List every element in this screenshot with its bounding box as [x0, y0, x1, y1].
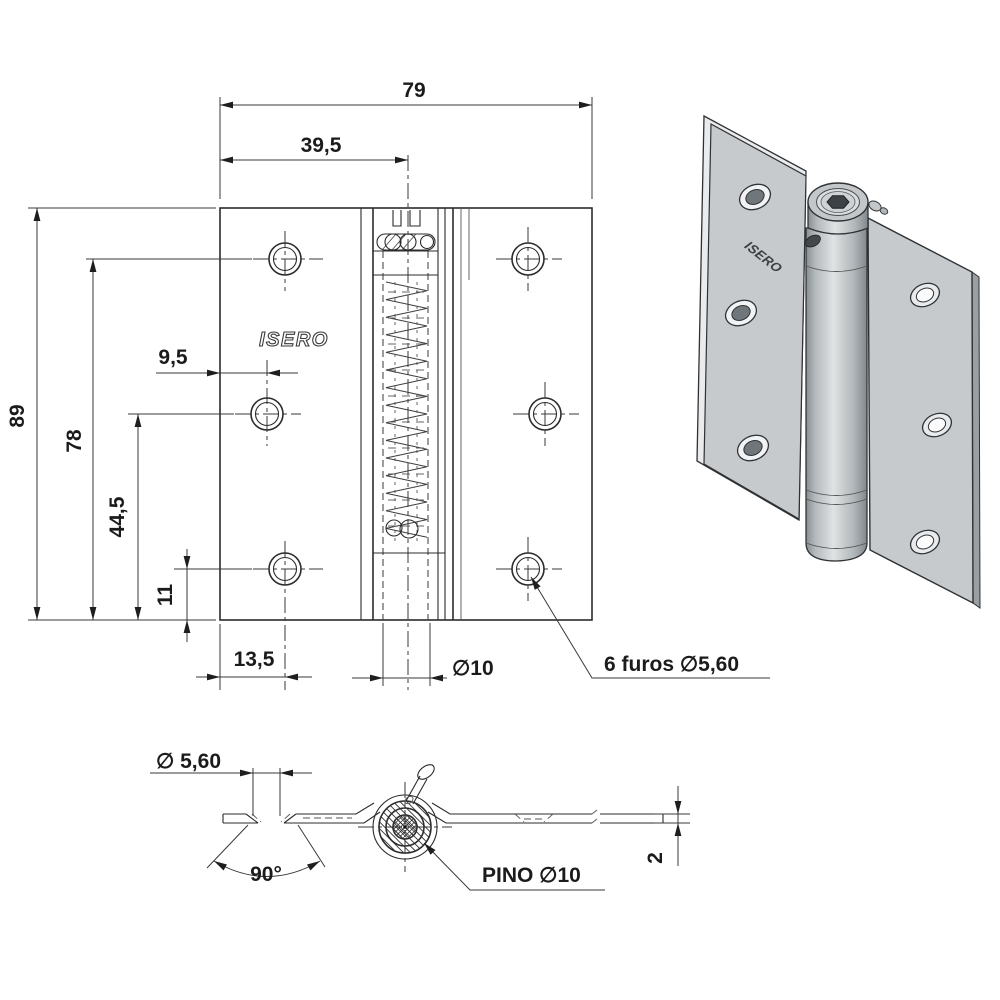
dimension-arrow	[220, 102, 233, 109]
dimension-arrow	[307, 858, 322, 870]
dimension-arrow	[285, 674, 298, 681]
dimension-arrow	[370, 675, 383, 682]
dimension-arrow	[267, 370, 280, 377]
dim-overall-height-label: 89	[6, 404, 29, 427]
dimension-arrow	[135, 414, 142, 427]
hinge-technical-drawing: ISERO 79 39,5 89 78 44,5 11 9,5 13,5	[0, 0, 1000, 1000]
hex-socket	[827, 196, 849, 209]
brand-engraving: ISERO	[259, 329, 329, 351]
dimension-arrow	[184, 556, 191, 569]
dimension-arrow	[220, 157, 233, 164]
dimension-arrow	[90, 607, 97, 620]
dimension-arrow	[528, 575, 541, 590]
dimension-arrow	[675, 823, 682, 836]
spring-end-loop	[400, 520, 418, 538]
barrel-cylinder	[806, 228, 867, 561]
iso-view: ISERO	[697, 116, 980, 608]
right-leaf-section	[428, 803, 663, 823]
hinge-technical-drawing-page: ISERO 79 39,5 89 78 44,5 11 9,5 13,5	[0, 0, 1000, 1000]
dimension-arrow	[34, 607, 41, 620]
dimension-arrow	[207, 674, 220, 681]
dimension-arrow	[135, 607, 142, 620]
knuckle-section	[358, 782, 452, 873]
dim-middle-hole-inset-label: 9,5	[158, 346, 188, 369]
dim-knuckle-diameter-label: ∅10	[452, 657, 494, 680]
dimension-arrow	[395, 157, 408, 164]
tension-screw	[377, 234, 435, 250]
dimension-arrow	[675, 801, 682, 814]
dimension-arrow	[240, 770, 253, 777]
dimension-arrow	[430, 675, 443, 682]
spring-coil	[386, 282, 427, 546]
left-leaf-section	[223, 803, 380, 823]
dim-bottom-hole-inset-label: 13,5	[234, 648, 275, 671]
section-view: ∅ 5,60 90° PINO ∅10 2	[150, 750, 690, 890]
front-dimensions: 79 39,5 89 78 44,5 11 9,5 13,5 ∅10	[6, 79, 770, 690]
hidden-countersink	[515, 814, 553, 822]
dim-bottom-hole-height-label: 11	[154, 584, 177, 607]
dimension-arrows	[34, 102, 682, 871]
dim-plate-thickness-label: 2	[644, 852, 667, 864]
dimension-arrow	[207, 370, 220, 377]
holes-callout-label: 6 furos ∅5,60	[604, 653, 739, 676]
pin-callout-label: PINO ∅10	[482, 864, 581, 887]
dimension-arrow	[90, 259, 97, 272]
dim-overall-width-label: 79	[402, 79, 425, 102]
front-view: ISERO	[220, 155, 592, 690]
dimension-arrow	[34, 208, 41, 221]
dim-middle-hole-height-label: 44,5	[106, 496, 129, 537]
dimension-arrow	[579, 102, 592, 109]
dim-countersink-angle-label: 90°	[250, 863, 282, 886]
dim-holes-height-label: 78	[63, 429, 86, 453]
dimension-arrow	[184, 620, 191, 633]
dim-hole-diameter-label: ∅ 5,60	[156, 750, 221, 773]
dimension-arrow	[280, 770, 293, 777]
dim-pin-center-label: 39,5	[301, 134, 342, 157]
